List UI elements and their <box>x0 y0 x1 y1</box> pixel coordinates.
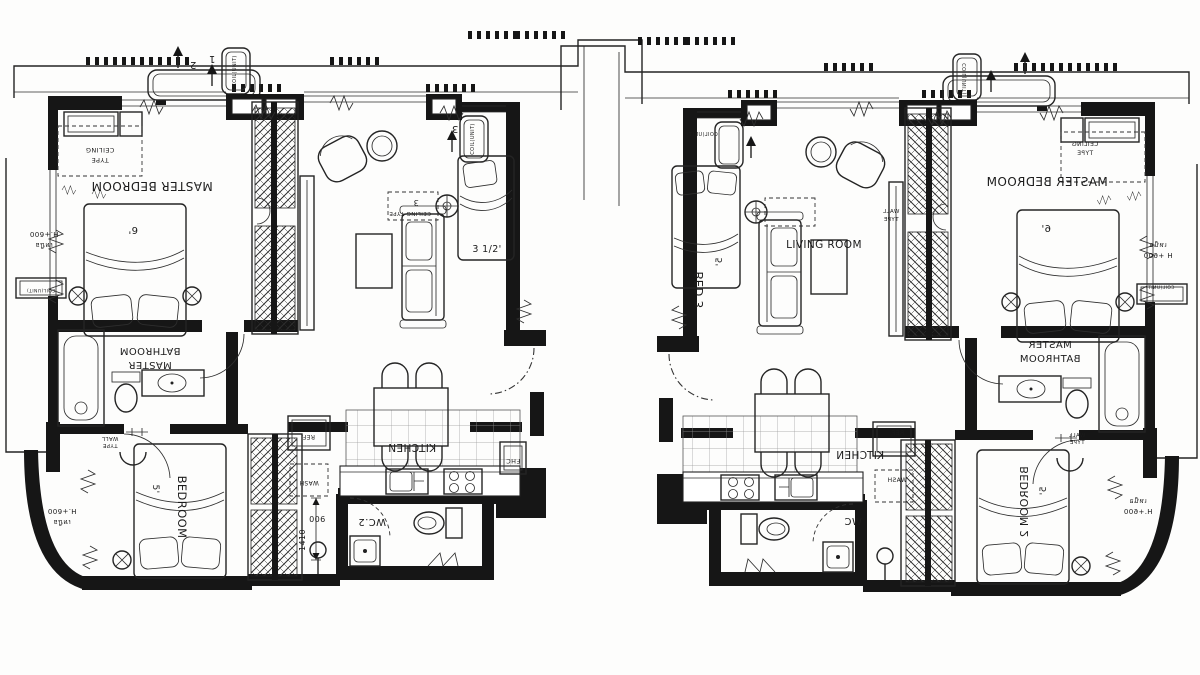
height-note-right-a: เหนือ <box>1149 241 1167 249</box>
master-bed-size: 6' <box>1041 224 1051 235</box>
balcony-tag-2: 2 <box>190 59 197 70</box>
living-ceiling-num: 3 <box>413 198 419 207</box>
master-bathroom-label-a: MASTER <box>1028 340 1072 351</box>
ceiling-type-label-1a: CEILING <box>86 146 115 154</box>
coil-unit-box-right: COIL(UNIT) <box>1146 285 1175 291</box>
height-note-left-a: H.+600 <box>30 230 59 238</box>
coil-unit-tag-3-num: 3 <box>452 123 459 134</box>
master-bed-size: 6' <box>128 224 138 235</box>
ceiling-type-label-b: TYPE <box>1077 150 1094 157</box>
wash-label: WASH <box>887 477 907 484</box>
wash-label: WASH <box>299 479 319 486</box>
ceiling-type-label-a: CEILING <box>1072 141 1099 148</box>
master-bedroom-label: MASTER BEDROOM <box>986 175 1107 189</box>
wall-type-label-b: TYPE <box>102 442 118 448</box>
master-bedroom-label: MASTER BEDROOM <box>91 179 212 193</box>
bedroom2-bed-size: 5' <box>1039 486 1049 495</box>
bed3-bed-size: 5' <box>715 257 725 266</box>
bedroom-label: BEDROOM <box>175 476 189 539</box>
fhc-label: FHC <box>506 457 520 465</box>
height-note-curve-b: เหนือ <box>53 518 71 526</box>
wc-label: WC <box>844 517 862 528</box>
bed3-size: 3 1/2' <box>472 244 501 255</box>
coil-unit-tag-top-left: COIL(UNIT) <box>686 132 718 138</box>
coil-unit-tag-1-num: 1 <box>209 53 216 64</box>
ref-label: REF. <box>301 433 315 440</box>
kitchen-label: KITCHEN <box>388 441 436 453</box>
ceiling-type-label-1b: TYPE <box>91 156 110 164</box>
master-bathroom-label-a: BATHROOM <box>119 345 180 356</box>
wc2-label: WC.2 <box>358 516 386 527</box>
bed3-room-label: BED 3 <box>692 272 706 309</box>
height-note-curve-a: เหนือ <box>1129 497 1147 505</box>
kitchen-label: KITCHEN <box>836 450 884 462</box>
dim-1410: 1410 <box>298 529 307 551</box>
wall-type-lower-a: WALL <box>1068 433 1085 439</box>
master-bathroom-label-b: MASTER <box>128 359 172 370</box>
coil-unit-tag-1-text: COIL(UNIT) <box>232 55 238 87</box>
ref-label: REF. <box>890 430 904 437</box>
wall-type-upper-b: TYPE <box>883 217 899 223</box>
master-bathroom-label-b: BATHROOM <box>1019 354 1080 365</box>
living-ceiling-label: CEILING TYPE <box>389 210 431 216</box>
wall-type-lower-b: TYPE <box>1069 440 1085 446</box>
dim-900: 900 <box>309 514 325 523</box>
coil-unit-tag-3-text: COIL(UNIT) <box>470 123 476 155</box>
bedroom-bed-size: 5' <box>150 484 160 493</box>
wall-type-label-a: WALL <box>101 435 118 441</box>
wall-type-upper-a: WALL <box>882 209 899 215</box>
bedroom2-label: BEDROOM 2 <box>1018 466 1031 538</box>
height-note-curve-a: H.+600 <box>48 507 77 515</box>
height-note-right-b: H +600 <box>1143 252 1172 260</box>
height-note-left-b: เหนือ <box>35 241 53 249</box>
living-room-label: LIVING ROOM <box>786 239 862 251</box>
coil-unit-box-left: COIL(UNIT) <box>27 287 56 293</box>
floor-plan-canvas: 2COIL(UNIT)1CEILINGTYPEMASTER BEDROOM6'3… <box>0 0 1200 675</box>
coil-unit-tag-vertical: COIL(UNIT) <box>962 63 968 95</box>
floor-plan-page: 2COIL(UNIT)1CEILINGTYPEMASTER BEDROOM6'3… <box>0 0 1200 675</box>
height-note-curve-b: H.+600 <box>1124 508 1153 516</box>
